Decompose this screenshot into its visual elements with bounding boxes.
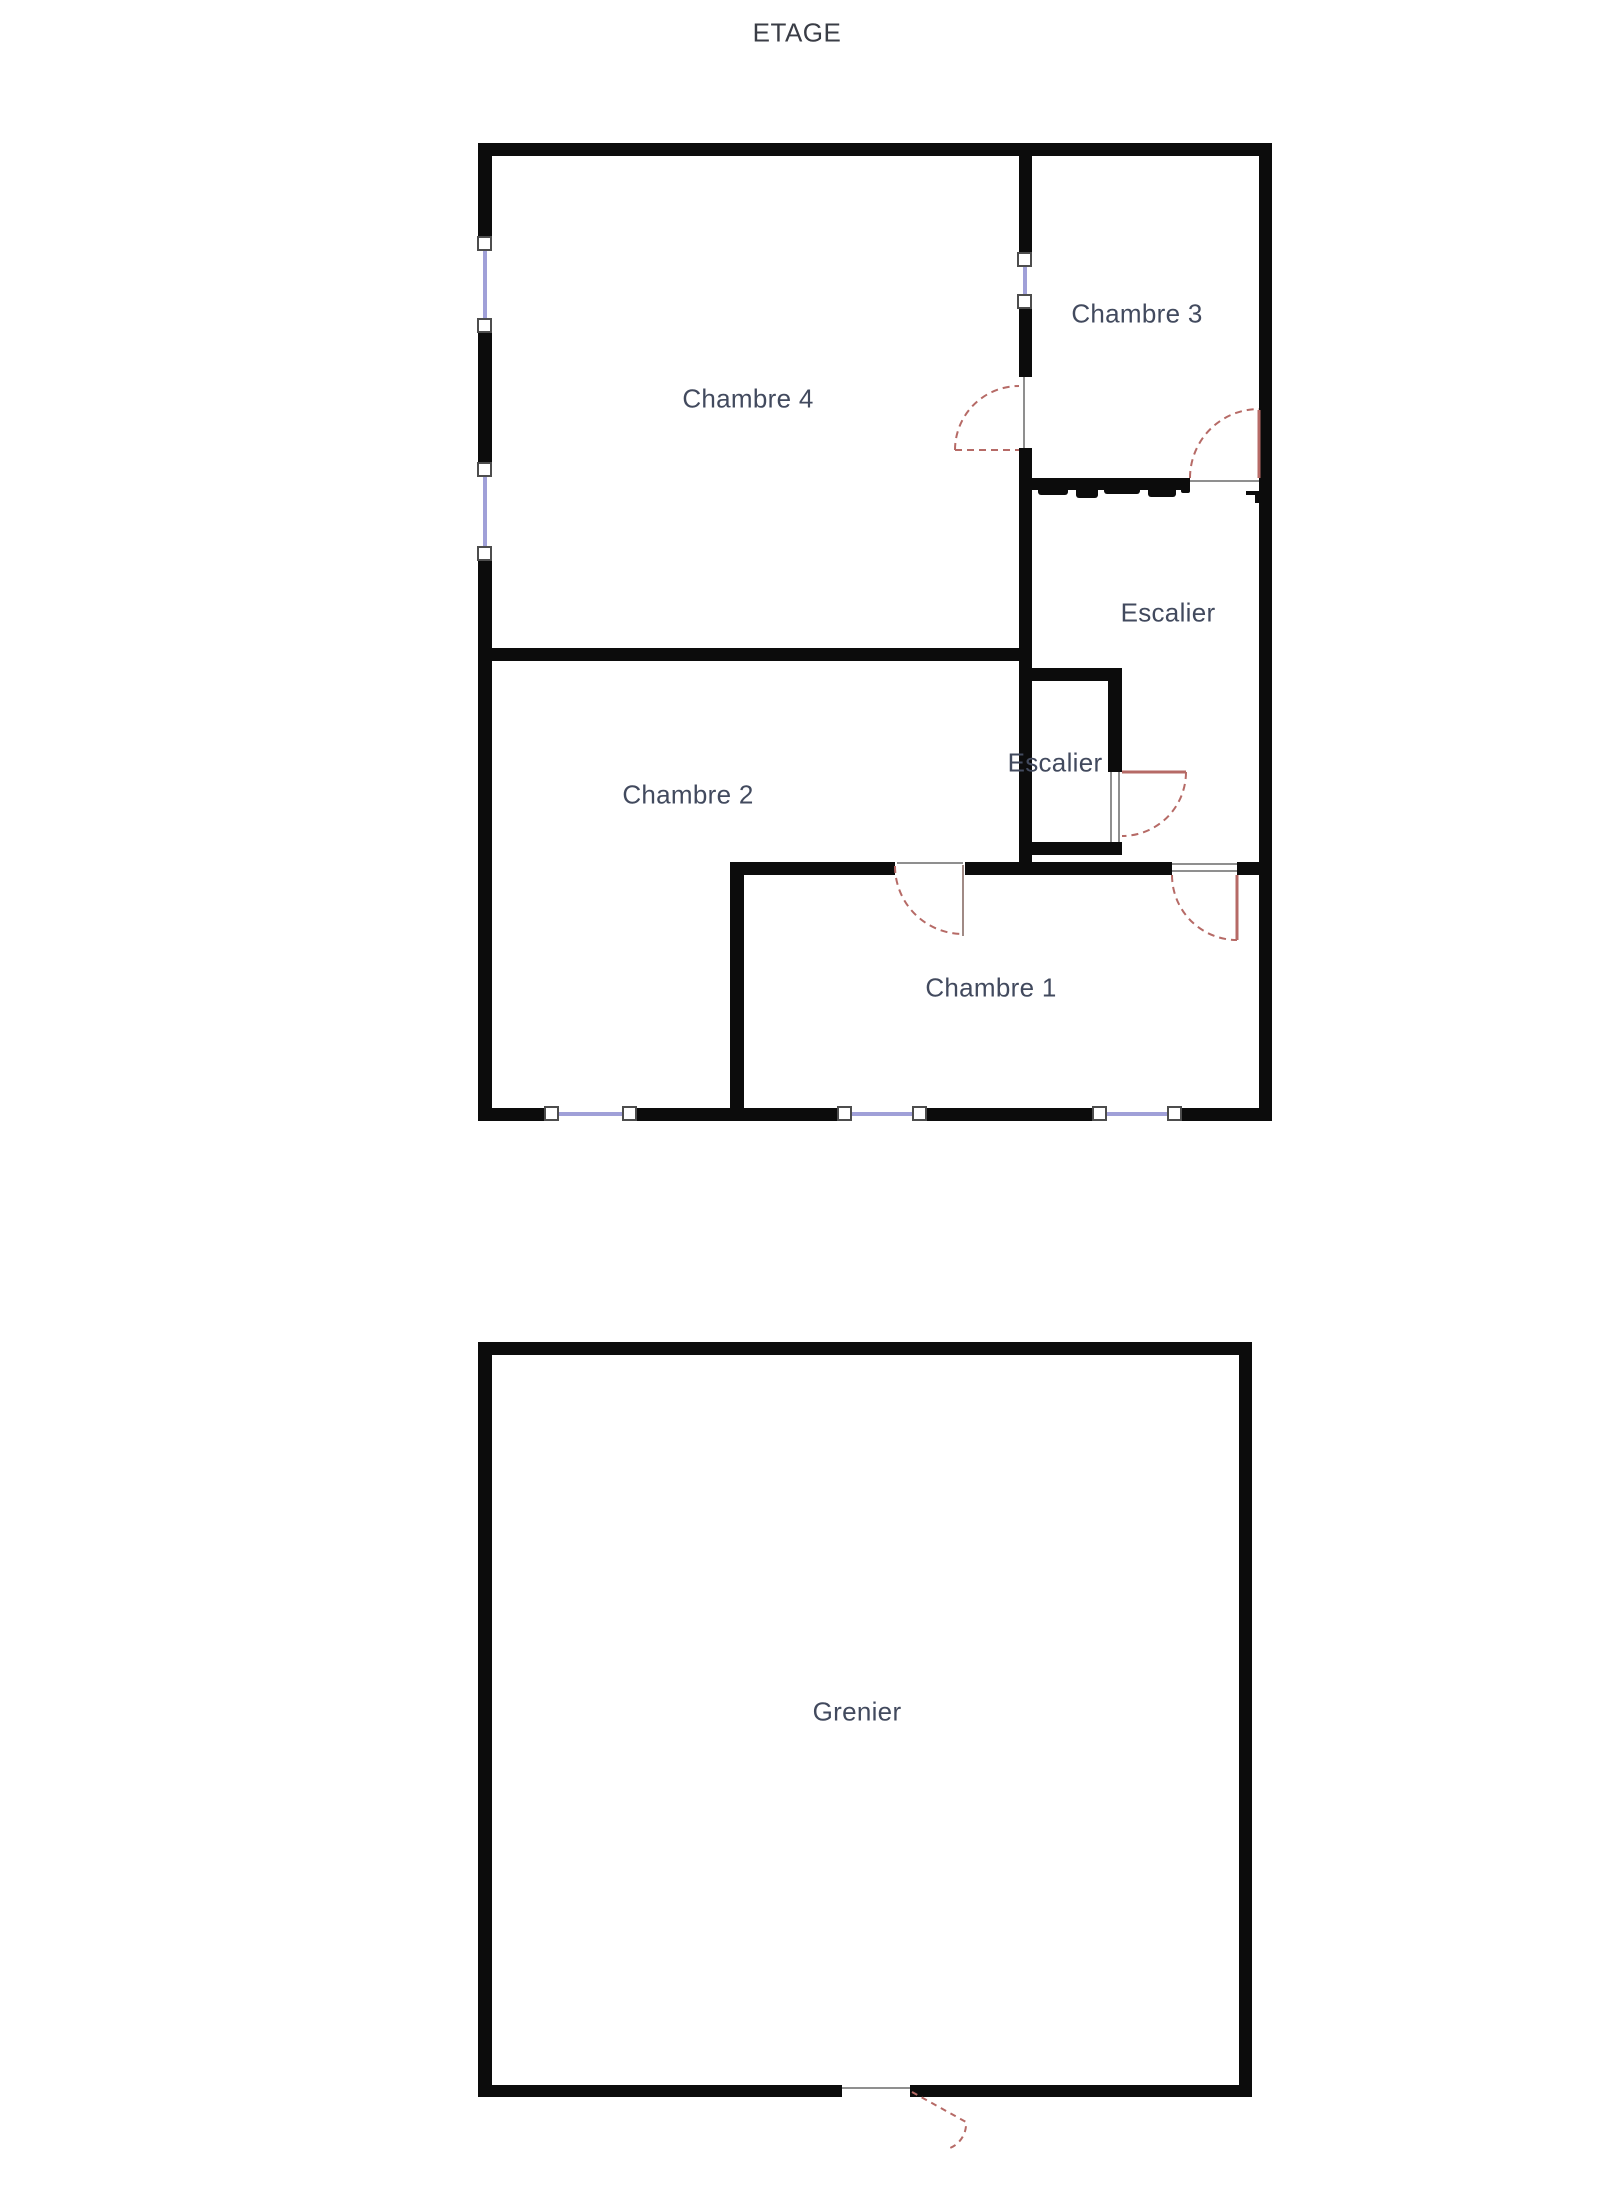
window-handle: [478, 463, 491, 476]
stairbox-wall-right: [1108, 668, 1122, 772]
room-label-escalier-hall: Escalier: [1121, 598, 1216, 629]
window-handle: [1018, 295, 1031, 308]
smudge: [1038, 486, 1068, 495]
upper-plan-walls: [478, 143, 1272, 1121]
smudge: [1181, 486, 1190, 493]
wall-chambre1-left: [730, 866, 744, 1121]
window-handle: [1168, 1107, 1181, 1120]
room-label-grenier: Grenier: [813, 1697, 902, 1728]
window-handle: [545, 1107, 558, 1120]
smudge: [1148, 487, 1176, 497]
attic-wall-right: [1239, 1342, 1252, 2097]
room-label-chambre1: Chambre 1: [925, 973, 1056, 1004]
attic-wall-top: [478, 1342, 1252, 1355]
window-handle: [838, 1107, 851, 1120]
room-label-chambre4: Chambre 4: [682, 384, 813, 415]
outer-wall-right: [1259, 143, 1272, 1121]
window-handle: [478, 547, 491, 560]
door-chambre3: [1190, 409, 1259, 478]
smudge: [1076, 487, 1098, 498]
door-swing: [912, 2092, 966, 2148]
attic-wall-bottom-right: [910, 2085, 1252, 2097]
stairbox-wall-bottom: [1019, 842, 1122, 855]
floorplan-page: ETAGE Chambre 4 Chambre 3 Escalier Escal…: [0, 0, 1600, 2202]
window-handle: [1093, 1107, 1106, 1120]
smudge: [1104, 486, 1140, 494]
door-chambre1-right: [1172, 875, 1237, 940]
floorplan-drawing: [0, 0, 1600, 2202]
window-handle: [623, 1107, 636, 1120]
wall-openings: [476, 251, 1168, 1123]
plan-title: ETAGE: [753, 18, 842, 49]
wall-chambre1-top-stub: [1237, 862, 1259, 875]
door-stairbox: [1122, 772, 1186, 836]
attic-wall-left: [478, 1342, 492, 2097]
window-handle: [478, 319, 491, 332]
room-label-chambre2: Chambre 2: [622, 780, 753, 811]
room-label-chambre3: Chambre 3: [1071, 299, 1202, 330]
window-handle: [478, 237, 491, 250]
smudge: [1255, 491, 1259, 503]
wall-chambre4-chambre2: [480, 648, 1032, 661]
stairbox-wall-top: [1019, 668, 1122, 681]
door-chambre4: [955, 386, 1019, 450]
window-handle: [913, 1107, 926, 1120]
room-label-escalier-box: Escalier: [1008, 748, 1103, 779]
outer-wall-top: [478, 143, 1272, 156]
door-opening-chambre4: [1017, 377, 1034, 448]
doors: [895, 386, 1259, 940]
attic-wall-bottom-left: [478, 2085, 842, 2097]
window-handle: [1018, 253, 1031, 266]
